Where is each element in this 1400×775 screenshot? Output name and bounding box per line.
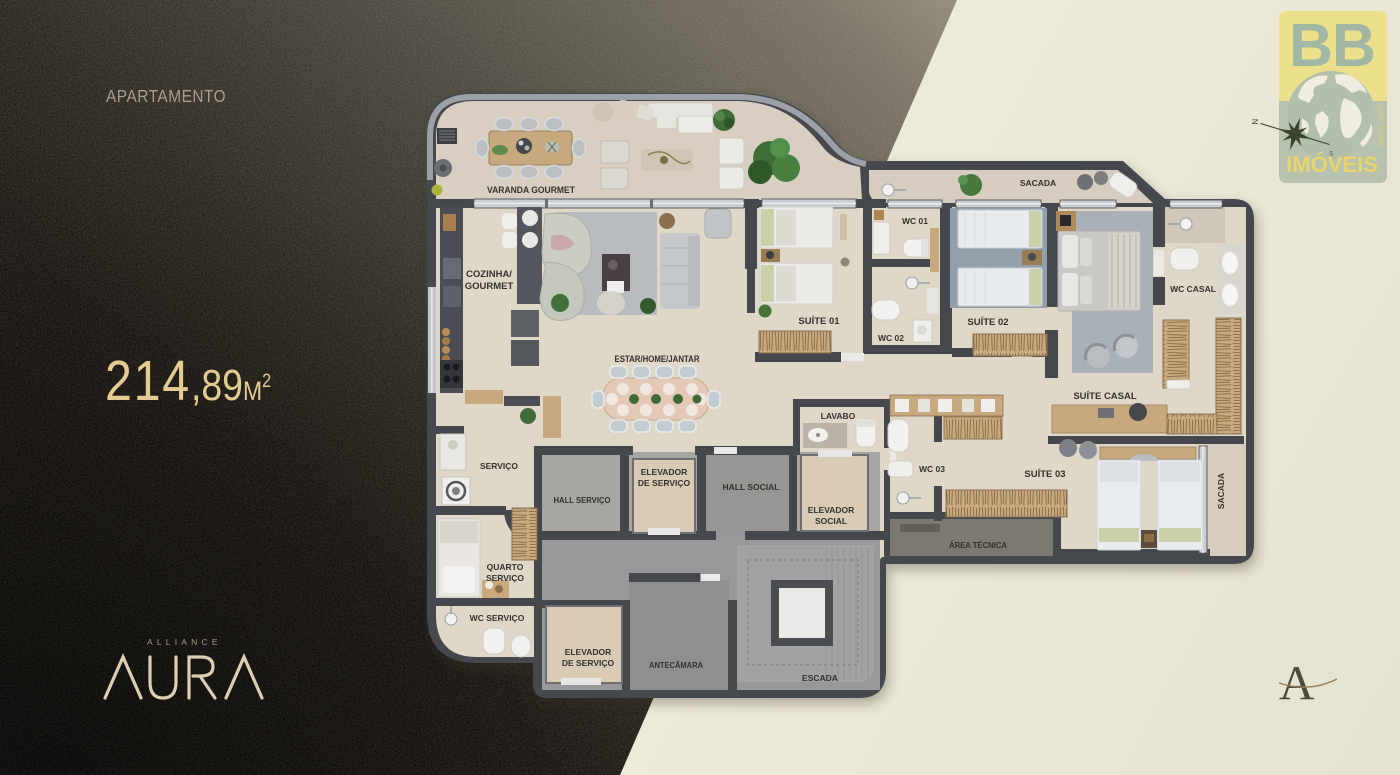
svg-text:SUÍTE 02: SUÍTE 02 — [967, 317, 1008, 328]
svg-text:SOCIAL: SOCIAL — [815, 516, 847, 526]
svg-text:COZINHA/: COZINHA/ — [466, 269, 512, 280]
svg-text:CRECI - 2977J: CRECI - 2977J — [1378, 103, 1385, 147]
svg-text:SACADA: SACADA — [1020, 178, 1056, 188]
svg-text:VARANDA GOURMET: VARANDA GOURMET — [487, 185, 575, 196]
svg-text:ESTAR/HOME/JANTAR: ESTAR/HOME/JANTAR — [615, 354, 700, 365]
svg-text:ELEVADOR: ELEVADOR — [641, 467, 688, 477]
svg-text:SERVIÇO: SERVIÇO — [486, 573, 524, 583]
svg-text:HALL SERVIÇO: HALL SERVIÇO — [554, 495, 611, 505]
svg-text:WC 03: WC 03 — [919, 464, 945, 474]
svg-text:S: S — [1329, 151, 1333, 157]
svg-text:HALL SOCIAL: HALL SOCIAL — [723, 482, 780, 492]
svg-text:SUÍTE 01: SUÍTE 01 — [798, 316, 840, 327]
svg-text:DE SERVIÇO: DE SERVIÇO — [562, 658, 615, 668]
svg-text:WC SERVIÇO: WC SERVIÇO — [470, 613, 525, 623]
svg-text:SERVIÇO: SERVIÇO — [480, 461, 518, 471]
svg-text:ELEVADOR: ELEVADOR — [808, 505, 855, 515]
svg-text:N: N — [1251, 119, 1260, 125]
svg-text:SUÍTE CASAL: SUÍTE CASAL — [1073, 391, 1137, 402]
svg-text:ANTECÂMARA: ANTECÂMARA — [649, 659, 703, 670]
svg-text:ELEVADOR: ELEVADOR — [565, 647, 612, 657]
svg-text:WC 01: WC 01 — [902, 216, 928, 226]
svg-text:GOURMET: GOURMET — [465, 281, 514, 292]
svg-text:BB: BB — [1289, 11, 1375, 79]
svg-text:ÁREA TÉCNICA: ÁREA TÉCNICA — [949, 540, 1007, 550]
svg-text:QUARTO: QUARTO — [487, 562, 524, 572]
svg-text:WC CASAL: WC CASAL — [1170, 284, 1216, 294]
svg-text:SUÍTE 03: SUÍTE 03 — [1024, 469, 1065, 480]
svg-text:ESCADA: ESCADA — [802, 673, 838, 683]
svg-text:WC 02: WC 02 — [878, 333, 904, 343]
svg-text:SACADA: SACADA — [1216, 473, 1226, 509]
svg-text:DE SERVIÇO: DE SERVIÇO — [638, 478, 691, 488]
svg-text:LAVABO: LAVABO — [821, 411, 856, 421]
